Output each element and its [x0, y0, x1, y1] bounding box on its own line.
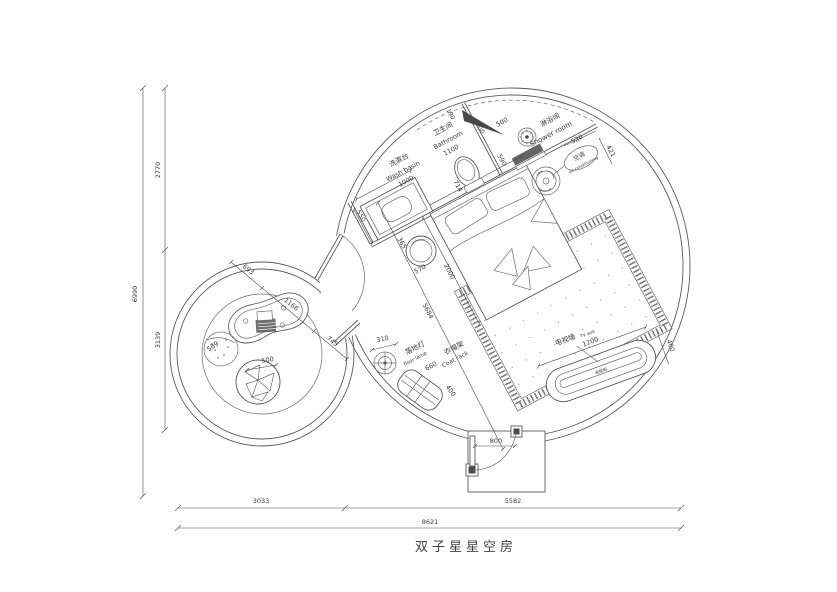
dim-toilet-width: 700: [473, 121, 486, 136]
dim-tv-depth: 400: [665, 338, 677, 352]
dim-ac-width: 520: [570, 133, 585, 146]
floor-lamp-icon: 310 落地灯 floor lamp: [370, 334, 428, 374]
dim-coat-depth: 400: [444, 383, 458, 398]
dim-bed-length: 2000: [442, 262, 457, 280]
dim-bath-gap: 190: [445, 108, 457, 122]
dim-left-top: 2770: [154, 162, 162, 179]
dim-coat-width: 660: [424, 360, 439, 373]
bottom-dimensions: 3033 5582 8621: [175, 497, 684, 531]
dim-left-bottom: 3139: [154, 332, 162, 349]
pouf: 589: [204, 332, 238, 366]
entry-door: 800: [466, 426, 545, 492]
dim-overall-height: 6990: [131, 286, 139, 303]
dim-bottom-left: 3033: [253, 497, 270, 505]
dim-pouf: 589: [205, 340, 220, 354]
door-leaf: [470, 436, 475, 466]
dim-shower-depth: 590: [495, 153, 508, 168]
nightstand: 365 570: [395, 236, 436, 276]
dim-diagonal: 5684: [420, 302, 435, 320]
dim-overall-width: 8621: [422, 518, 439, 526]
left-dimensions: 6990 2770 3139: [131, 85, 168, 499]
floor-plan-canvas: 1800 2000: [0, 0, 837, 592]
page-title: 双子星星空房: [415, 539, 517, 555]
tv-wall-cn: 电视墙: [554, 332, 577, 348]
floor-plan-page: 1800 2000: [0, 0, 837, 592]
dim-beanbag: 500: [261, 355, 275, 365]
kidney-table: [224, 288, 314, 347]
junction-gap: [316, 230, 368, 345]
dim-bottom-right: 5582: [505, 497, 522, 505]
dim-shower-door: 500: [495, 116, 510, 129]
dim-table-a: 693: [241, 262, 256, 276]
dim-lamp: 310: [376, 334, 390, 344]
beanbag: 500: [236, 355, 280, 404]
dim-ac-depth: 421: [604, 144, 617, 159]
